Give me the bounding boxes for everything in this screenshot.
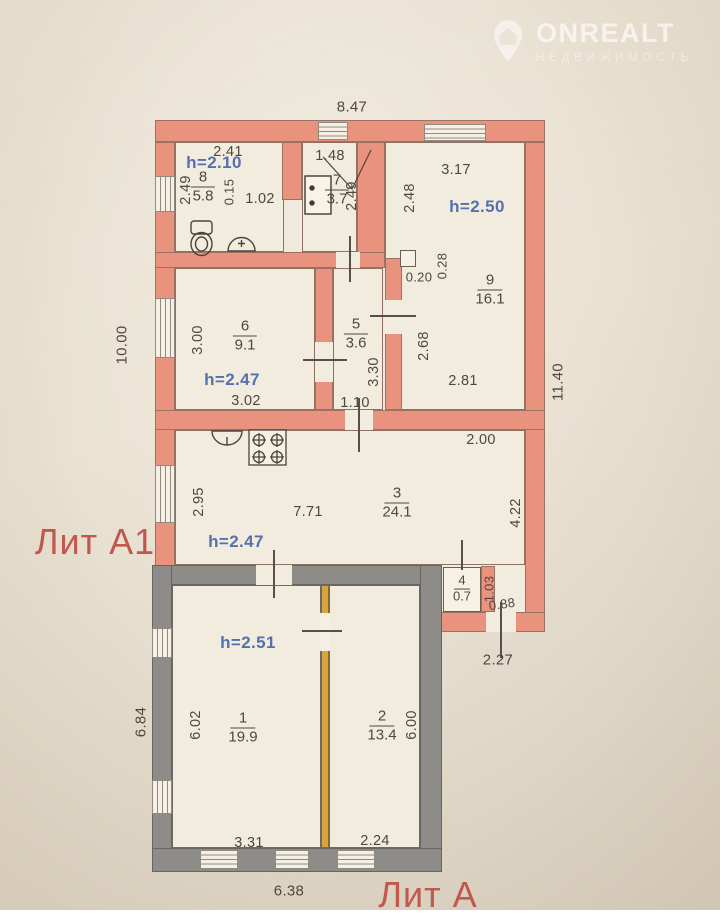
lit-a1-label: Лит А1 [35,521,155,563]
dim-room1-left: 6.02 [188,710,204,739]
dim-room9-bottom: 2.81 [448,373,477,389]
room-6-label: 69.1 [233,318,257,355]
onrealt-pin-icon [492,18,524,64]
room-1-label: 119.9 [228,710,257,747]
room-7-label: 73.7 [325,172,349,209]
dim-room3-left: 2.95 [191,487,207,516]
watermark-tagline: НЕДВИЖИМОСТЬ [536,52,693,64]
dim-overall-right: 11.40 [550,363,567,401]
room-6-height-label: h=2.47 [204,370,260,390]
dim-room6-bottom: 3.02 [231,393,260,409]
dim-room6-left: 3.00 [190,325,206,354]
dim-niche-width: 0.20 [406,270,433,285]
watermark-brand: ONREALT [536,18,693,49]
room-9-height-label: h=2.50 [449,197,505,217]
dim-room3-right: 4.22 [508,498,524,527]
dim-overall-bottom: 6.38 [274,883,304,900]
dim-overall-top: 8.47 [337,99,367,116]
dim-room2-bottom: 2.24 [360,833,389,849]
labels-layer: 8.472.412.490.151.021.482.493.172.480.20… [0,0,720,910]
dim-room1-bottom: 3.31 [234,835,263,851]
room-2-label: 213.4 [367,708,396,745]
room-3-label: 324.1 [382,485,411,522]
dim-room9-left-lower: 2.68 [416,331,432,360]
room-1-height-label: h=2.51 [220,633,276,653]
room-3-height-label: h=2.47 [208,532,264,552]
room-4-label: 40.7 [453,574,471,605]
watermark: ONREALT НЕДВИЖИМОСТЬ [492,18,693,64]
dim-overall-left: 10.00 [114,325,131,364]
dim-room9-top: 3.17 [441,162,470,178]
watermark-text: ONREALT НЕДВИЖИМОСТЬ [536,18,693,64]
dim-room2-right: 6.00 [404,710,420,739]
dim-porch-width: 2.27 [483,652,513,669]
floor-plan-document: ONREALT НЕДВИЖИМОСТЬ [0,0,720,910]
dim-room4-gap: 0.88 [488,595,516,614]
dim-room3-width: 7.71 [293,504,322,520]
room-8-label: 85.8 [191,169,215,206]
room-5-label: 53.6 [344,316,368,353]
dim-overall-left-a: 6.84 [133,707,150,737]
dim-room8-bottom: 1.02 [245,191,274,207]
dim-room5-bottom: 1.10 [340,395,369,411]
dim-room5-right: 3.30 [366,357,382,386]
dim-niche-depth: 0.28 [435,253,450,280]
room-9-label: 916.1 [475,272,504,309]
dim-room7-top: 1.48 [315,148,344,164]
dim-room8-partition: 0.15 [222,179,237,206]
dim-room9-left: 2.48 [402,183,418,212]
dim-room3-top: 2.00 [466,432,495,448]
